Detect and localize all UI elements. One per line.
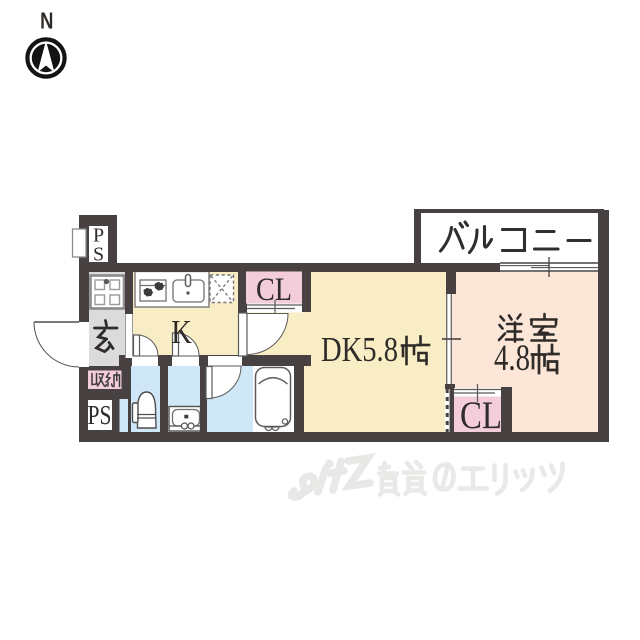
svg-text:DK5.8: DK5.8 [321, 331, 398, 369]
svg-text:S: S [93, 244, 104, 266]
svg-text:N: N [40, 9, 53, 34]
svg-text:PS: PS [88, 400, 112, 430]
svg-text:CL: CL [460, 394, 502, 437]
svg-text:CL: CL [256, 272, 292, 308]
svg-text:K: K [171, 313, 192, 351]
svg-text:4.8: 4.8 [494, 338, 530, 379]
